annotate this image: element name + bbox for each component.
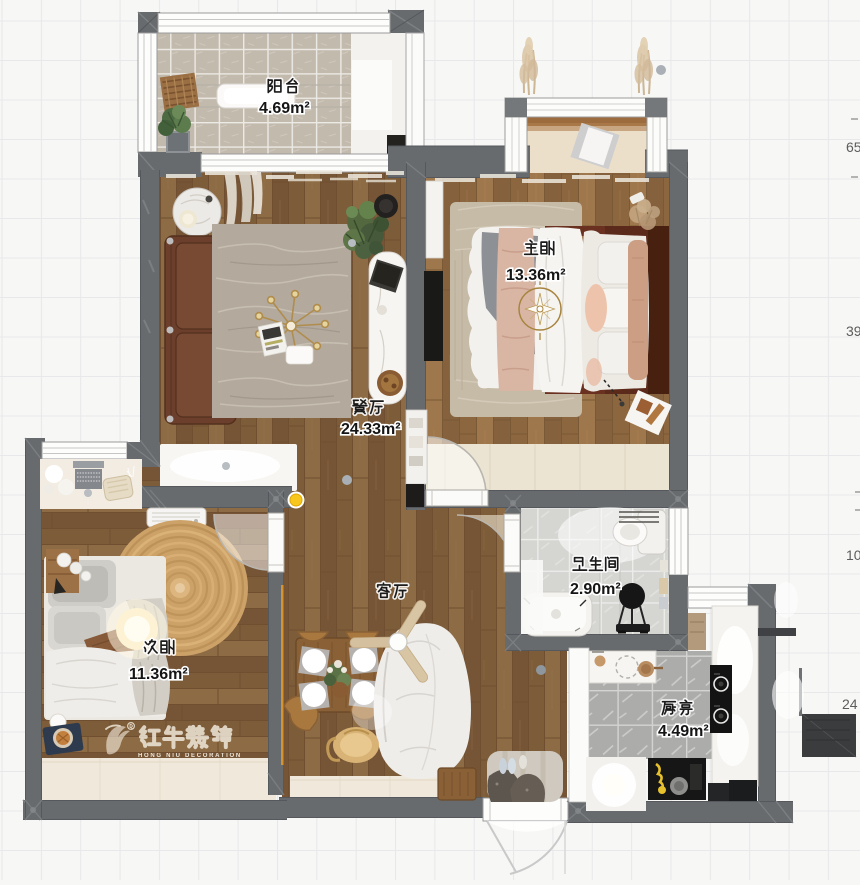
svg-text:24.33m²: 24.33m² xyxy=(341,421,401,438)
svg-text:10: 10 xyxy=(846,547,860,563)
svg-text:HONG NIU DECORATION: HONG NIU DECORATION xyxy=(138,753,242,759)
svg-text:2.90m²: 2.90m² xyxy=(570,581,621,598)
svg-text:4.69m²: 4.69m² xyxy=(259,100,310,117)
svg-text:4.49m²: 4.49m² xyxy=(658,723,709,740)
svg-text:39: 39 xyxy=(846,323,860,339)
svg-text:13.36m²: 13.36m² xyxy=(506,267,566,284)
svg-text:65: 65 xyxy=(846,139,860,155)
svg-text:11.36m²: 11.36m² xyxy=(129,666,188,683)
svg-text:24: 24 xyxy=(842,696,858,712)
